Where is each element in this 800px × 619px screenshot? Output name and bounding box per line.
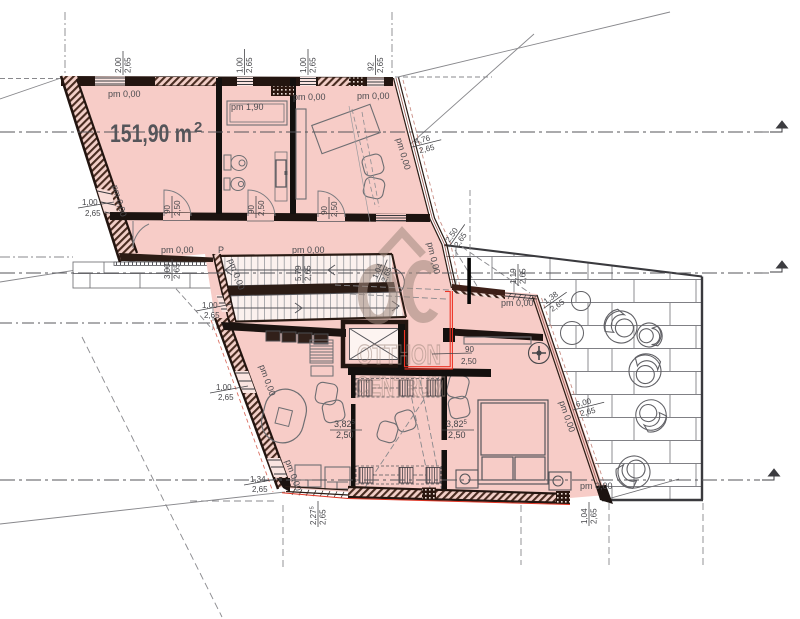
svg-text:2,65: 2,65 (173, 263, 182, 279)
svg-text:3,00: 3,00 (163, 263, 172, 279)
svg-text:90: 90 (320, 206, 329, 215)
svg-text:90: 90 (465, 345, 474, 354)
svg-text:151,90 m: 151,90 m (110, 120, 192, 148)
svg-text:pm 0,00: pm 0,00 (293, 92, 326, 102)
svg-text:2,65: 2,65 (309, 57, 318, 73)
svg-text:pm 0,00: pm 0,00 (580, 481, 613, 491)
svg-text:2,65: 2,65 (218, 393, 234, 402)
svg-text:OTTHON: OTTHON (357, 339, 441, 370)
svg-text:1,04: 1,04 (580, 508, 589, 524)
svg-text:1,00: 1,00 (299, 57, 308, 73)
svg-text:5,79: 5,79 (294, 265, 303, 281)
svg-text:2,65: 2,65 (124, 57, 133, 73)
svg-text:2,50: 2,50 (330, 201, 339, 217)
svg-text:90: 90 (163, 205, 172, 214)
svg-text:pm 1,90: pm 1,90 (231, 102, 264, 112)
svg-text:P: P (218, 245, 224, 255)
svg-text:2: 2 (194, 119, 202, 136)
svg-text:90: 90 (247, 205, 256, 214)
svg-text:pm 0,00: pm 0,00 (108, 89, 141, 99)
svg-text:2,65: 2,65 (85, 209, 101, 218)
svg-text:pm 0,00: pm 0,00 (357, 91, 390, 101)
svg-text:2,65: 2,65 (590, 508, 599, 524)
svg-text:2,65: 2,65 (204, 311, 220, 320)
svg-text:2,65: 2,65 (245, 57, 254, 73)
svg-text:2,50: 2,50 (461, 357, 477, 366)
svg-text:pm 0,00: pm 0,00 (292, 245, 325, 255)
svg-text:2,65: 2,65 (304, 265, 313, 281)
svg-text:1,19: 1,19 (509, 268, 518, 284)
svg-text:2,65: 2,65 (252, 485, 268, 494)
svg-text:2,50: 2,50 (257, 200, 266, 216)
svg-text:2,65: 2,65 (319, 509, 328, 525)
svg-text:2,50: 2,50 (336, 430, 354, 440)
svg-text:92: 92 (367, 62, 376, 71)
svg-text:pm 0,00: pm 0,00 (161, 245, 194, 255)
svg-text:2,65: 2,65 (376, 57, 385, 73)
svg-text:1,00: 1,00 (236, 57, 245, 73)
svg-text:2,00: 2,00 (114, 57, 123, 73)
svg-text:pm 0,00: pm 0,00 (501, 298, 534, 308)
svg-text:CENTRUM: CENTRUM (356, 371, 446, 402)
svg-text:2,50: 2,50 (448, 430, 466, 440)
svg-text:2,65: 2,65 (519, 268, 528, 284)
svg-text:2,50: 2,50 (173, 200, 182, 216)
